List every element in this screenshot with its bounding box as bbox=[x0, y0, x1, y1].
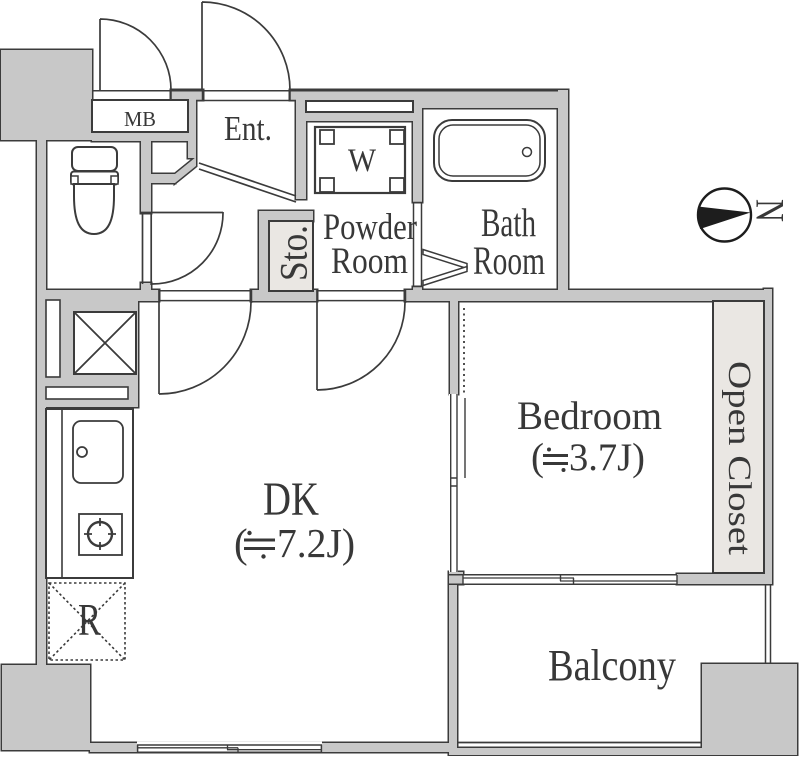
svg-text:Sto.: Sto. bbox=[273, 225, 316, 281]
svg-text:Room: Room bbox=[331, 241, 408, 282]
svg-text:MB: MB bbox=[124, 107, 156, 131]
svg-text:3.7J): 3.7J) bbox=[569, 436, 645, 479]
svg-text:DK: DK bbox=[263, 473, 319, 526]
svg-text:Ent.: Ent. bbox=[224, 109, 272, 148]
svg-text:N: N bbox=[748, 199, 793, 222]
svg-text:Room: Room bbox=[473, 238, 545, 283]
svg-text:(: ( bbox=[531, 436, 544, 479]
svg-text:Bedroom: Bedroom bbox=[517, 393, 662, 438]
svg-text:R: R bbox=[78, 595, 101, 645]
svg-text:7.2J): 7.2J) bbox=[277, 520, 355, 566]
svg-text:Balcony: Balcony bbox=[548, 641, 676, 690]
svg-text:(: ( bbox=[234, 520, 248, 566]
svg-text:Open Closet: Open Closet bbox=[721, 361, 757, 555]
svg-text:W: W bbox=[348, 143, 377, 179]
